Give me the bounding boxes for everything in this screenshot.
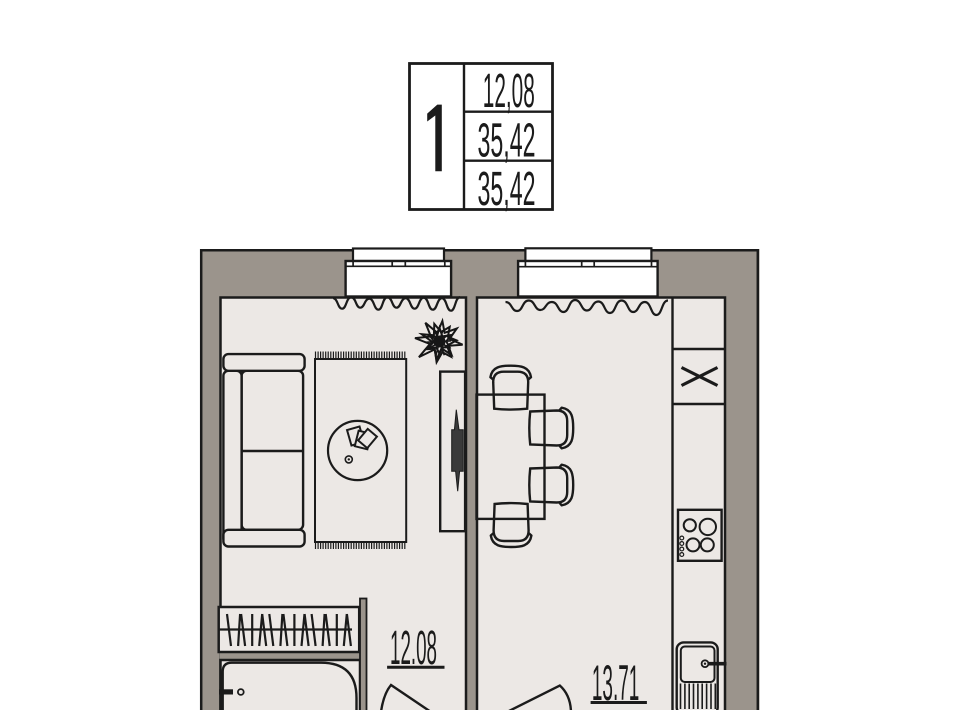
svg-text:35,42: 35,42 [478,163,536,216]
svg-text:35,42: 35,42 [478,115,536,168]
svg-text:12,08: 12,08 [483,65,535,118]
